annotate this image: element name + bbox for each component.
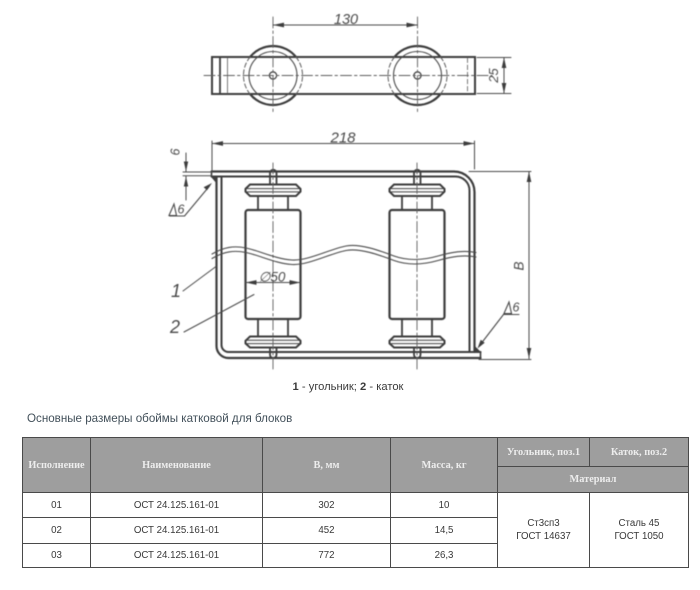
svg-text:6: 6 xyxy=(169,149,183,156)
svg-text:25: 25 xyxy=(486,68,501,84)
svg-text:130: 130 xyxy=(334,12,358,28)
svg-text:В: В xyxy=(512,261,527,270)
svg-text:6: 6 xyxy=(178,203,185,217)
svg-text:1: 1 xyxy=(171,281,181,301)
svg-text:2: 2 xyxy=(169,317,180,337)
svg-text:218: 218 xyxy=(329,130,356,147)
svg-text:∅50: ∅50 xyxy=(259,270,286,285)
svg-text:6: 6 xyxy=(513,301,520,315)
